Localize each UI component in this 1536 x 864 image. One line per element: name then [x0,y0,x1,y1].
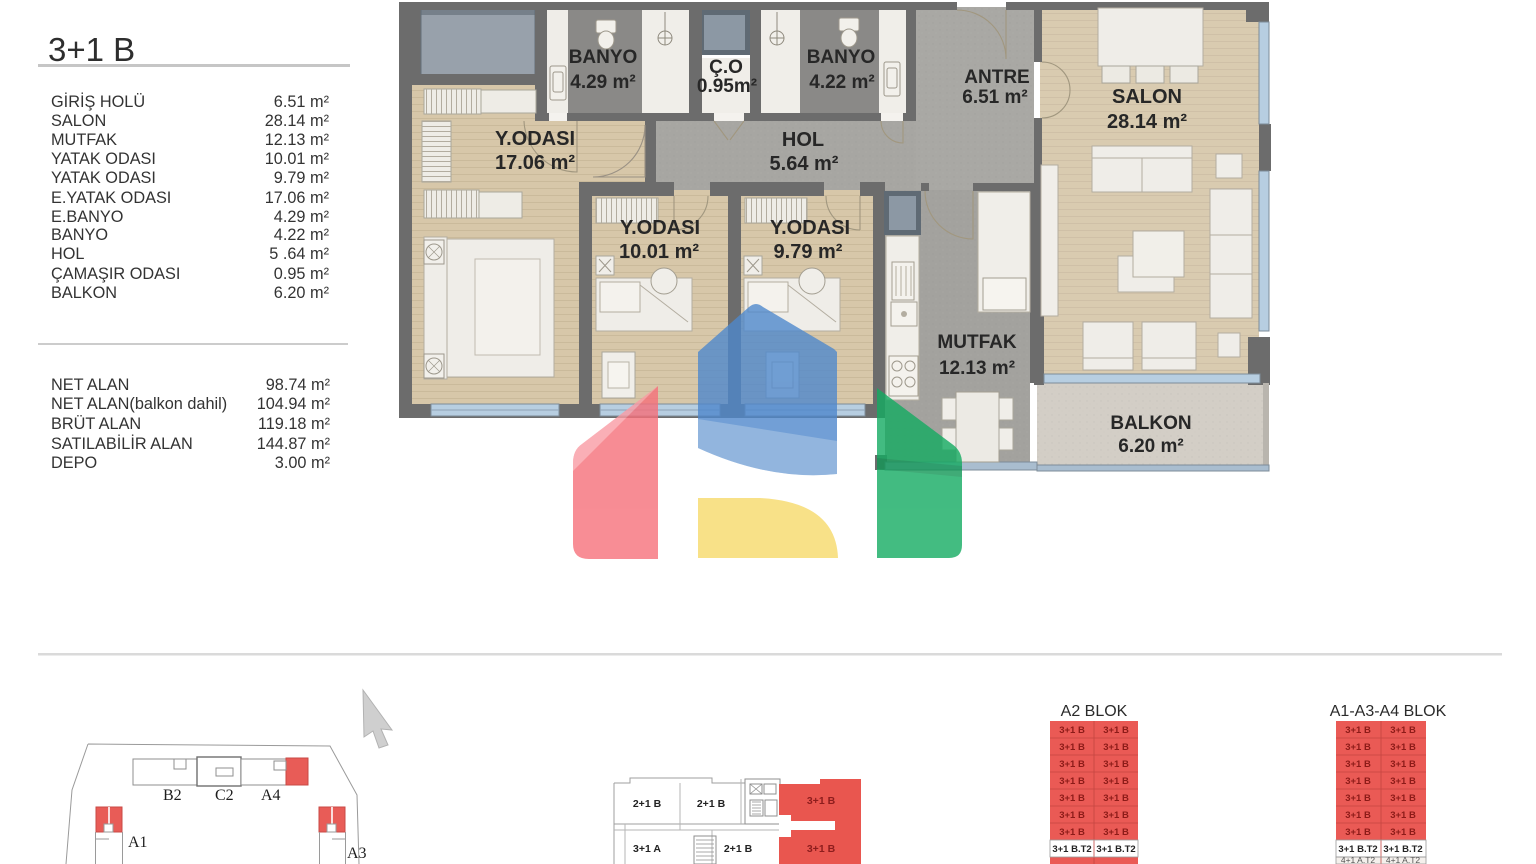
svg-text:3+1 B.T2: 3+1 B.T2 [1338,844,1377,855]
svg-text:3+1 B: 3+1 B [1345,776,1371,787]
svg-text:28.14 m²: 28.14 m² [265,112,330,130]
svg-text:9.79 m²: 9.79 m² [274,169,330,187]
svg-text:YATAK ODASI: YATAK ODASI [51,169,156,187]
svg-text:GİRİŞ HOLÜ: GİRİŞ HOLÜ [51,92,145,111]
svg-text:3+1 B: 3+1 B [1345,742,1371,753]
svg-text:Y.ODASI: Y.ODASI [620,217,700,239]
svg-text:5 .64 m²: 5 .64 m² [269,245,329,263]
svg-text:3.00 m²: 3.00 m² [275,454,331,472]
svg-text:E.YATAK ODASI: E.YATAK ODASI [51,189,171,207]
svg-text:BALKON: BALKON [51,284,117,302]
svg-text:A2 BLOK: A2 BLOK [1061,703,1128,720]
svg-text:3+1 B: 3+1 B [1059,793,1085,804]
svg-text:3+1 B: 3+1 B [1059,759,1085,770]
svg-text:ÇAMAŞIR ODASI: ÇAMAŞIR ODASI [51,265,180,283]
svg-text:A4: A4 [261,787,281,804]
svg-text:3+1 A: 3+1 A [633,843,661,855]
svg-text:3+1 B: 3+1 B [1345,725,1371,736]
svg-text:BRÜT ALAN: BRÜT ALAN [51,415,141,433]
svg-text:3+1 B: 3+1 B [1103,725,1129,736]
svg-text:3+1 B: 3+1 B [1103,827,1129,838]
svg-text:3+1 B: 3+1 B [1059,810,1085,821]
svg-text:10.01 m²: 10.01 m² [265,150,330,168]
svg-text:5.64 m²: 5.64 m² [770,153,839,175]
svg-text:3+1 B.T2: 3+1 B.T2 [1383,844,1422,855]
svg-text:3+1 B: 3+1 B [1059,776,1085,787]
svg-text:17.06 m²: 17.06 m² [495,152,575,174]
svg-text:98.74 m²: 98.74 m² [266,376,331,394]
svg-text:B2: B2 [163,787,182,804]
svg-text:3+1 B: 3+1 B [1103,742,1129,753]
svg-text:104.94 m²: 104.94 m² [257,395,331,413]
svg-text:3+1 B: 3+1 B [1103,776,1129,787]
svg-text:HOL: HOL [782,129,824,151]
svg-text:28.14 m²: 28.14 m² [1107,111,1187,133]
svg-text:SALON: SALON [51,112,106,130]
svg-text:3+1 B: 3+1 B [1345,759,1371,770]
svg-text:4.22 m²: 4.22 m² [274,226,330,244]
svg-text:3+1 B: 3+1 B [1059,827,1085,838]
svg-text:BANYO: BANYO [807,47,876,68]
svg-text:3+1 B: 3+1 B [1345,793,1371,804]
svg-text:4.29 m²: 4.29 m² [570,72,635,93]
svg-text:Ç.O: Ç.O [709,57,743,78]
svg-text:HOL: HOL [51,245,84,263]
svg-text:3+1 B: 3+1 B [1390,742,1416,753]
svg-text:4.29 m²: 4.29 m² [274,208,330,226]
svg-text:4+1 A.T2: 4+1 A.T2 [1341,855,1376,864]
svg-text:2+1 B: 2+1 B [724,843,753,855]
svg-text:3+1 B: 3+1 B [1390,793,1416,804]
svg-text:NET ALAN(balkon dahil): NET ALAN(balkon dahil) [51,395,227,413]
svg-text:2+1 B: 2+1 B [633,798,662,810]
svg-text:NET ALAN: NET ALAN [51,376,129,394]
svg-text:MUTFAK: MUTFAK [937,332,1016,353]
svg-text:ANTRE: ANTRE [964,67,1029,88]
svg-text:17.06 m²: 17.06 m² [265,189,330,207]
svg-text:3+1 B: 3+1 B [1059,725,1085,736]
svg-text:3+1 B: 3+1 B [1059,742,1085,753]
svg-text:3+1 B: 3+1 B [1345,810,1371,821]
svg-text:3+1 B: 3+1 B [1390,725,1416,736]
svg-text:10.01 m²: 10.01 m² [619,241,699,263]
svg-text:E.BANYO: E.BANYO [51,208,123,226]
svg-text:SATILABİLİR ALAN: SATILABİLİR ALAN [51,434,193,453]
svg-text:3+1 B: 3+1 B [1390,759,1416,770]
svg-text:A1-A3-A4 BLOK: A1-A3-A4 BLOK [1330,703,1447,720]
svg-text:A3: A3 [347,845,367,862]
svg-text:3+1 B.T2: 3+1 B.T2 [1096,844,1135,855]
svg-text:6.20 m²: 6.20 m² [1118,436,1183,457]
svg-text:BANYO: BANYO [569,47,638,68]
svg-text:Y.ODASI: Y.ODASI [770,217,850,239]
svg-text:3+1 B.T2: 3+1 B.T2 [1052,844,1091,855]
svg-text:3+1 B: 3+1 B [1103,759,1129,770]
svg-text:3+1 B: 3+1 B [48,31,135,68]
svg-text:119.18 m²: 119.18 m² [258,415,331,433]
svg-text:BANYO: BANYO [51,226,108,244]
svg-text:6.51 m²: 6.51 m² [962,87,1027,108]
svg-text:3+1 B: 3+1 B [807,843,836,855]
svg-text:0.95m²: 0.95m² [697,76,757,97]
svg-text:3+1 B: 3+1 B [1103,793,1129,804]
svg-text:6.20 m²: 6.20 m² [274,284,330,302]
svg-text:A1: A1 [128,834,148,851]
svg-text:4.22 m²: 4.22 m² [809,72,874,93]
svg-text:2+1 B: 2+1 B [697,798,726,810]
svg-text:9.79 m²: 9.79 m² [774,241,843,263]
svg-text:3+1 B: 3+1 B [1390,776,1416,787]
svg-text:3+1 B: 3+1 B [1390,827,1416,838]
svg-text:YATAK ODASI: YATAK ODASI [51,150,156,168]
svg-text:0.95 m²: 0.95 m² [274,265,330,283]
svg-text:MUTFAK: MUTFAK [51,131,117,149]
svg-text:Y.ODASI: Y.ODASI [495,128,575,150]
svg-text:4+1 A.T2: 4+1 A.T2 [1386,855,1421,864]
svg-text:6.51 m²: 6.51 m² [274,93,330,111]
svg-text:3+1 B: 3+1 B [1390,810,1416,821]
svg-text:144.87 m²: 144.87 m² [257,435,331,453]
svg-text:C2: C2 [215,787,234,804]
svg-text:3+1 B: 3+1 B [807,795,836,807]
svg-text:12.13 m²: 12.13 m² [939,358,1015,379]
svg-text:SALON: SALON [1112,86,1182,108]
svg-text:3+1 B: 3+1 B [1345,827,1371,838]
svg-text:DEPO: DEPO [51,454,97,472]
svg-text:12.13 m²: 12.13 m² [265,131,330,149]
svg-text:3+1 B: 3+1 B [1103,810,1129,821]
svg-text:BALKON: BALKON [1110,413,1191,434]
